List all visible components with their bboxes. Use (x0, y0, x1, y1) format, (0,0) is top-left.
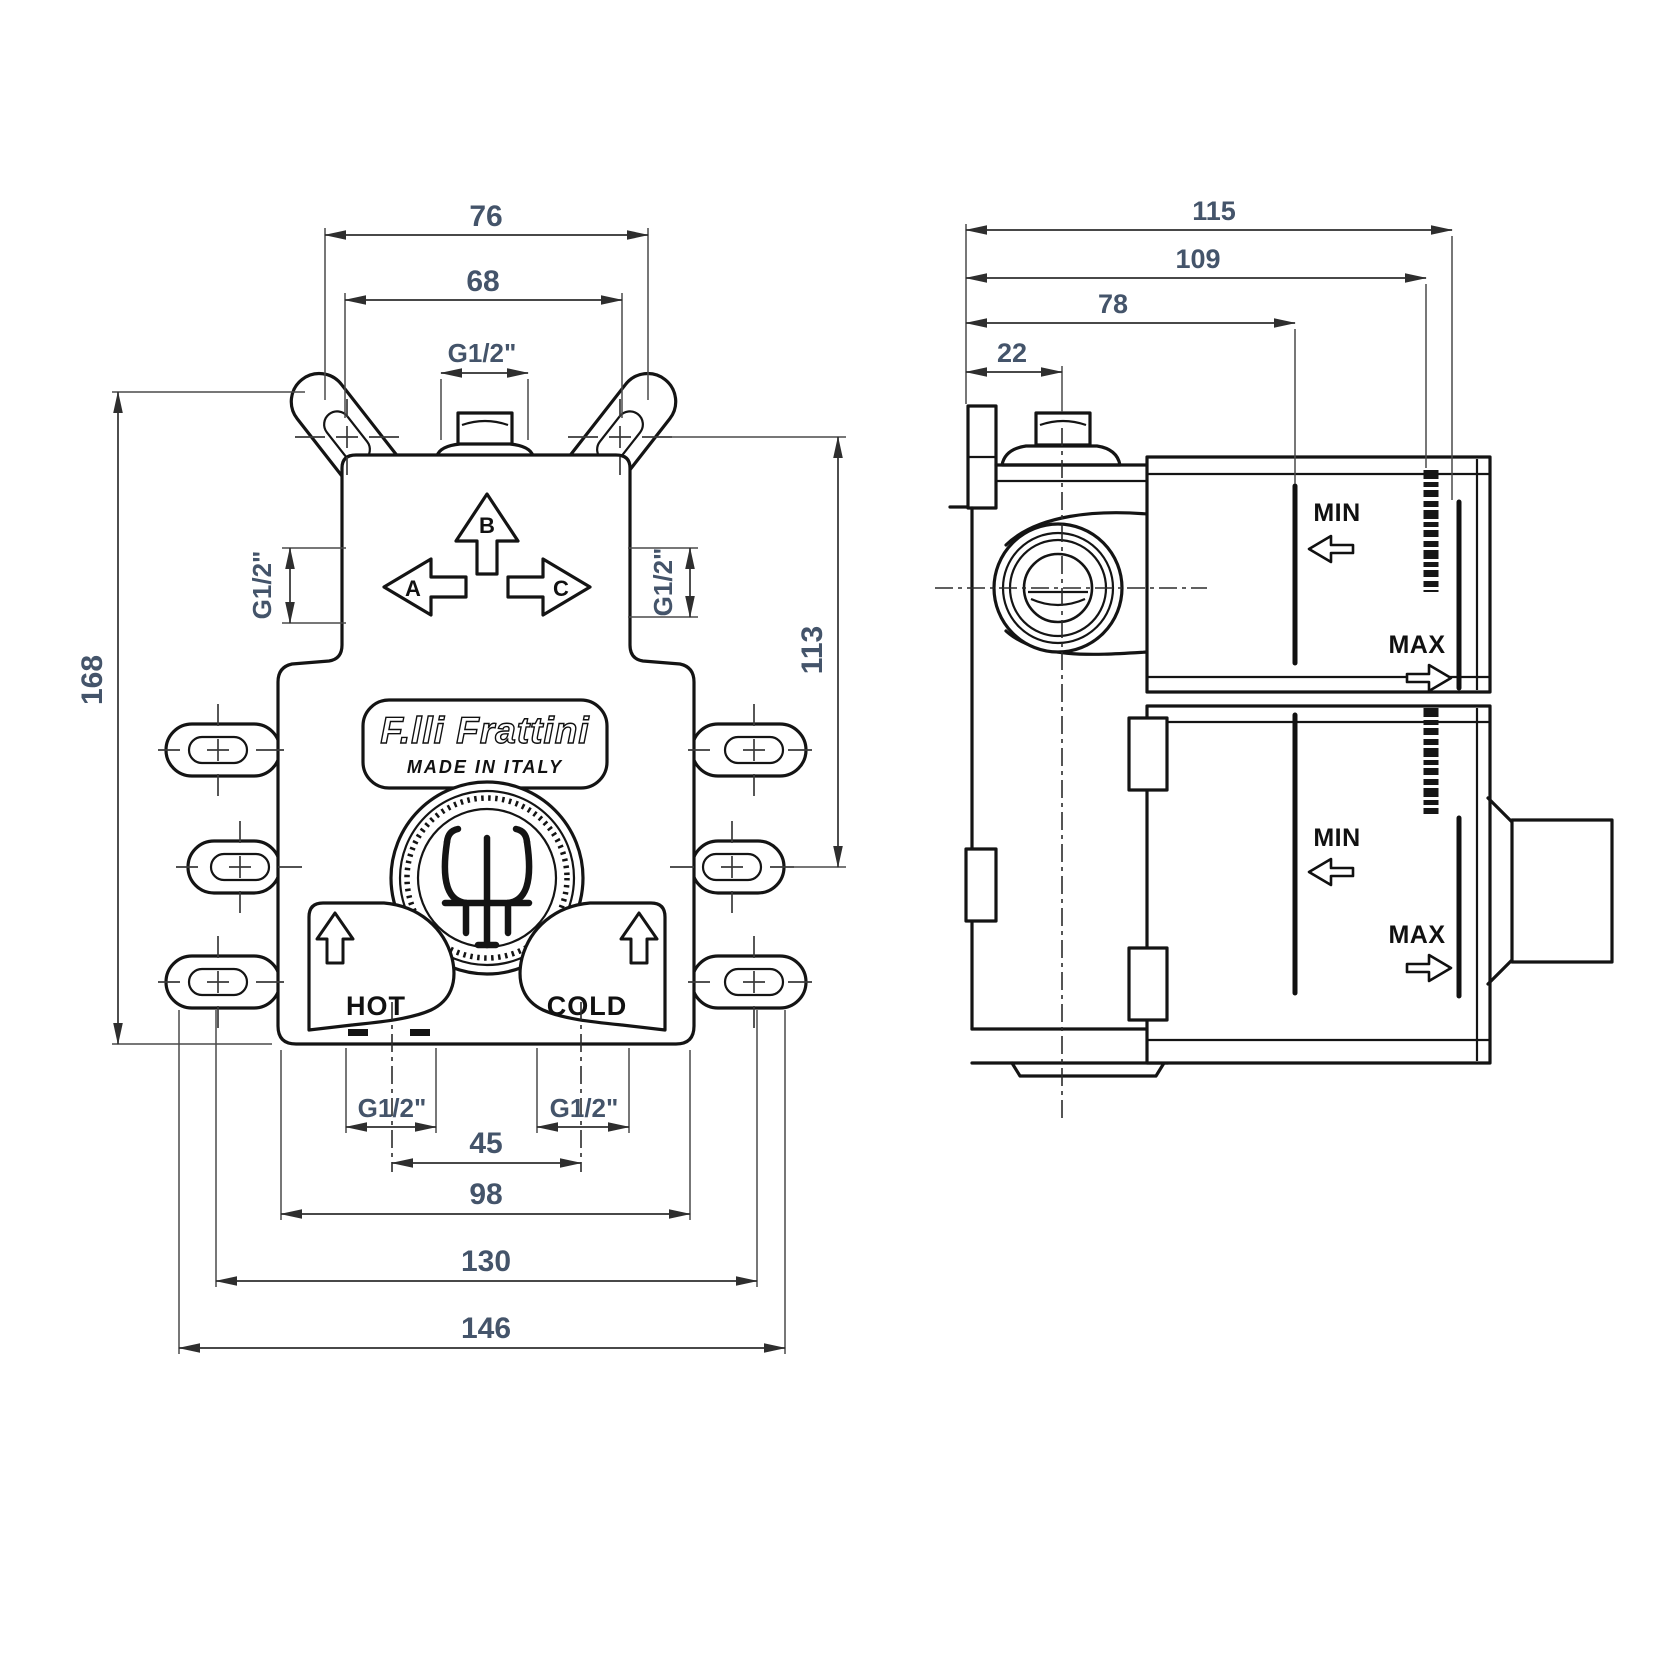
dim-115: 115 (1192, 196, 1236, 226)
dim-g12-hot: G1/2" (358, 1093, 427, 1123)
side-view: MIN MAX MIN MAX (935, 196, 1612, 1118)
cartridge-housing-upper: MIN MAX (1147, 457, 1490, 692)
cold-panel: COLD (520, 903, 665, 1030)
hot-label: HOT (346, 991, 406, 1021)
dim-g12-top: G1/2" (448, 338, 517, 368)
wall-plate (950, 406, 996, 508)
max-label-lower: MAX (1388, 921, 1445, 949)
dim-109: 109 (1175, 244, 1220, 274)
dim-g12-cold: G1/2" (550, 1093, 619, 1123)
front-view: B A C F.lli Frattini MADE IN ITALY (76, 200, 846, 1354)
cartridge-housing-lower: MIN MAX (1129, 706, 1490, 1063)
brand-name: F.lli Frattini (380, 710, 589, 751)
dim-113: 113 (796, 626, 829, 674)
dim-45: 45 (469, 1127, 502, 1160)
dim-130: 130 (461, 1245, 511, 1278)
valve-rough-in-drawing: B A C F.lli Frattini MADE IN ITALY (0, 0, 1660, 1660)
min-label-lower: MIN (1313, 824, 1360, 852)
dim-22: 22 (997, 338, 1027, 368)
dim-76: 76 (469, 200, 502, 233)
outlet-a-label: A (405, 576, 421, 601)
technical-drawing-page: B A C F.lli Frattini MADE IN ITALY (0, 0, 1660, 1660)
cold-label: COLD (547, 991, 628, 1021)
min-label-upper: MIN (1313, 499, 1360, 527)
top-outlet-port (437, 413, 533, 456)
brand-plate: F.lli Frattini MADE IN ITALY (363, 700, 607, 788)
outlet-c-label: C (553, 576, 569, 601)
hot-panel: HOT (309, 903, 454, 1030)
outlet-b-label: B (479, 513, 495, 538)
dim-68: 68 (466, 265, 499, 298)
dim-168: 168 (76, 655, 109, 705)
dim-146: 146 (461, 1312, 511, 1345)
dim-78: 78 (1098, 289, 1128, 319)
dim-g12-right: G1/2" (648, 548, 678, 617)
outlet-block (1488, 798, 1612, 984)
max-label-upper: MAX (1388, 631, 1445, 659)
side-top-port (1002, 413, 1120, 465)
dim-g12-left: G1/2" (247, 551, 277, 620)
made-in-italy-label: MADE IN ITALY (407, 757, 563, 777)
dim-98: 98 (469, 1178, 502, 1211)
